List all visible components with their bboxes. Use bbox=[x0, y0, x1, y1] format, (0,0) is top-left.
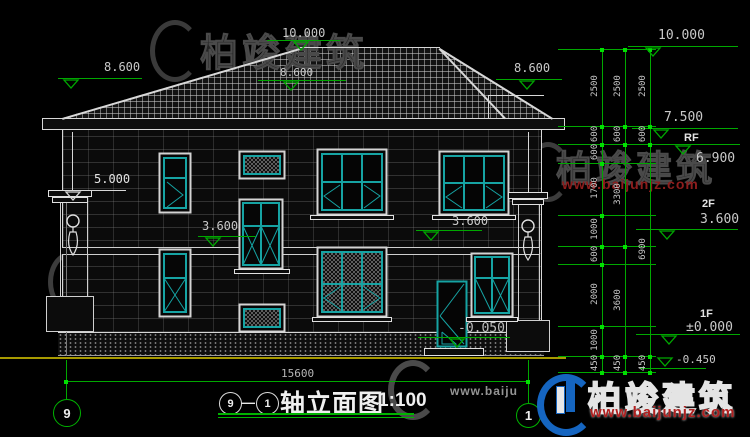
dim-tick bbox=[526, 380, 530, 384]
dimension-line bbox=[300, 47, 440, 48]
extension-line bbox=[558, 215, 656, 216]
eave-band bbox=[42, 118, 565, 130]
elev-label-apex: 10.000 bbox=[282, 26, 325, 40]
dim-tick bbox=[623, 355, 627, 359]
level-7500: 7.500 bbox=[664, 110, 703, 125]
dimension-line bbox=[650, 49, 651, 372]
dim-tick bbox=[600, 263, 604, 267]
dim-tick bbox=[600, 143, 604, 147]
lamp-ornament-left bbox=[65, 213, 81, 261]
lamp-ornament-right bbox=[520, 218, 536, 266]
window-stair-tall bbox=[238, 198, 284, 270]
door-step bbox=[424, 348, 484, 356]
brand-logo-building bbox=[556, 386, 565, 414]
level-10000: 10.000 bbox=[658, 28, 705, 43]
elev-label-eave-right: 8.600 bbox=[514, 61, 550, 75]
elevation-marker-icon bbox=[674, 145, 692, 156]
dim-tick bbox=[600, 325, 604, 329]
elevation-marker-icon bbox=[644, 47, 662, 58]
column-capital-right bbox=[508, 192, 548, 199]
dim-tick bbox=[600, 355, 604, 359]
level-m0450: -0.450 bbox=[676, 353, 716, 366]
dimension-line bbox=[625, 49, 626, 372]
elev-label-3600-left: 3.600 bbox=[202, 219, 238, 233]
level-6900: 6.900 bbox=[696, 151, 735, 166]
dim-tick bbox=[648, 355, 652, 359]
window-sill bbox=[234, 269, 290, 274]
elevation-marker-icon bbox=[64, 191, 82, 202]
title-axis-circle-1: 1 bbox=[256, 392, 279, 415]
window-2f-right bbox=[438, 150, 510, 216]
extension-line bbox=[558, 163, 656, 164]
column-base-right bbox=[506, 320, 550, 352]
dim-tick bbox=[600, 48, 604, 52]
dim-overall: 15600 bbox=[281, 367, 314, 380]
window-1f-center-hatched bbox=[316, 246, 388, 318]
elevation-marker-icon bbox=[652, 129, 670, 140]
axis-bubble-9: 9 bbox=[53, 399, 81, 427]
title-dash: — bbox=[241, 394, 255, 410]
dim-tick bbox=[600, 125, 604, 129]
brand-url: www.baijunjz.com bbox=[590, 404, 735, 421]
elev-label-3600-right: 3.600 bbox=[452, 214, 488, 228]
floor-belt-course bbox=[62, 247, 540, 255]
dim-text: 2500 bbox=[638, 64, 648, 108]
title-underline bbox=[218, 413, 414, 415]
extension-line bbox=[558, 326, 656, 327]
dimension-line bbox=[66, 381, 528, 382]
window-sill bbox=[312, 317, 392, 322]
dim-tick bbox=[623, 48, 627, 52]
elev-label-5000: 5.000 bbox=[94, 172, 130, 186]
column-axis-line bbox=[528, 132, 529, 194]
dim-tick bbox=[600, 214, 604, 218]
column-capital-right bbox=[512, 199, 544, 205]
dim-tick bbox=[648, 143, 652, 147]
cad-elevation-drawing: 10.000 8.600 8.600 8.600 5.000 3.600 3.6… bbox=[0, 0, 750, 437]
dim-tick bbox=[623, 125, 627, 129]
dim-tick bbox=[600, 162, 604, 166]
dim-text: 2500 bbox=[613, 64, 623, 108]
column-base-left bbox=[46, 296, 94, 332]
elevation-marker-icon bbox=[660, 335, 678, 346]
elev-label-ridge: 8.600 bbox=[280, 66, 313, 79]
dimension-line bbox=[488, 95, 544, 96]
dimension-line bbox=[636, 229, 738, 230]
elevation-marker-icon bbox=[292, 41, 310, 52]
elevation-marker-icon bbox=[62, 79, 80, 90]
title-axis-circle-9: 9 bbox=[219, 392, 242, 415]
dim-tick bbox=[600, 245, 604, 249]
elevation-marker-icon bbox=[204, 237, 222, 248]
dimension-line bbox=[258, 80, 346, 81]
level-3600: 3.600 bbox=[700, 212, 739, 227]
elevation-marker-icon bbox=[518, 80, 536, 91]
dim-text: 3300 bbox=[613, 172, 623, 216]
dim-text: 3600 bbox=[613, 278, 623, 322]
drawing-scale: 1:100 bbox=[378, 390, 427, 412]
dim-text: 2000 bbox=[590, 272, 600, 316]
dim-tick bbox=[64, 380, 68, 384]
dim-text: 600 bbox=[590, 232, 600, 276]
ground-line bbox=[0, 357, 566, 359]
dim-tick bbox=[623, 245, 627, 249]
dim-text: 600 bbox=[613, 112, 623, 156]
dim-tick bbox=[648, 125, 652, 129]
extension-line bbox=[558, 49, 656, 50]
dim-tick bbox=[623, 143, 627, 147]
elev-label-eave-left: 8.600 bbox=[104, 60, 140, 74]
elevation-marker-icon bbox=[448, 338, 466, 349]
elevation-marker-icon bbox=[658, 230, 676, 241]
elevation-marker-icon bbox=[282, 81, 300, 92]
window-sill bbox=[310, 215, 394, 220]
watermark-url: www.baijunjz.com bbox=[562, 176, 699, 192]
elevation-marker-icon bbox=[422, 231, 440, 242]
window-2f-center bbox=[316, 148, 388, 216]
level-0000: ±0.000 bbox=[686, 320, 733, 335]
window-1f-right bbox=[470, 252, 514, 318]
level-2f: 2F bbox=[702, 198, 715, 210]
elevation-marker-icon bbox=[656, 357, 674, 368]
level-1f: 1F bbox=[700, 308, 713, 320]
dim-text: 1700 bbox=[590, 166, 600, 210]
column-axis-line bbox=[72, 132, 73, 192]
elev-label-entry: -0.050 bbox=[458, 321, 505, 336]
window-2f-small-hatched bbox=[238, 150, 286, 180]
window-2f-left-narrow bbox=[158, 152, 192, 214]
watermark-logo bbox=[150, 20, 200, 82]
dim-text: 2500 bbox=[590, 64, 600, 108]
brand-logo-building bbox=[566, 380, 575, 412]
window-1f-small-hatched bbox=[238, 303, 286, 333]
dim-text: 6900 bbox=[638, 227, 648, 271]
dim-text: 600 bbox=[638, 112, 648, 156]
watermark-url-partial: www.baiju bbox=[450, 384, 518, 398]
window-1f-left-narrow bbox=[158, 248, 192, 318]
level-rf: RF bbox=[684, 132, 699, 144]
title-underline bbox=[218, 417, 414, 418]
